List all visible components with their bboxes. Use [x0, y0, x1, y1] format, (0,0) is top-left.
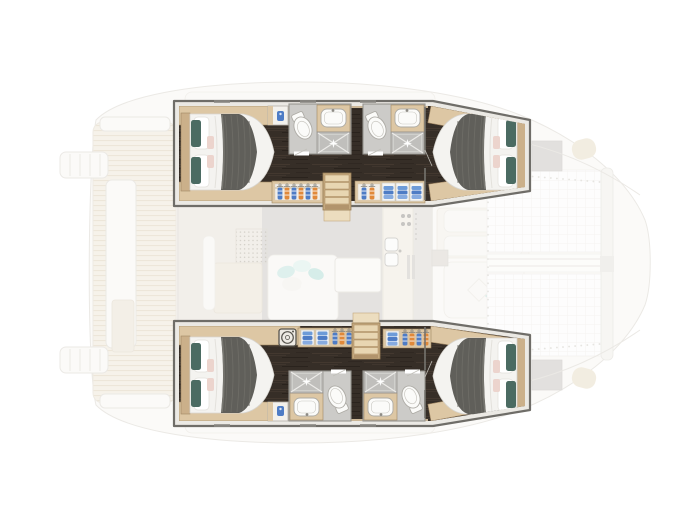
trampoline-spine: [487, 254, 607, 272]
dinette-table: [214, 263, 262, 313]
crossbeam-fitting: [600, 256, 614, 272]
catamaran-floor-plan: [0, 0, 700, 525]
starboard-aft-cabin-bed: [181, 336, 274, 414]
starboard-hull-lower-deck: [174, 313, 530, 427]
cockpit-seat-top: [100, 117, 170, 131]
dinette-bench: [203, 236, 215, 310]
starboard-forward-bathroom: [363, 370, 425, 422]
floor-mat: [236, 229, 267, 263]
port-side-cabinet: [268, 106, 288, 125]
port-wardrobe-right: [355, 181, 425, 203]
port-wardrobe-left: [272, 181, 323, 203]
port-forward-cabin-bed: [433, 113, 526, 191]
trampoline: [487, 170, 607, 356]
cockpit-table: [112, 300, 134, 352]
blue-bottle-icon: [277, 406, 284, 416]
floor-plan-canvas: [0, 0, 700, 525]
starboard-wardrobe-right: [383, 329, 431, 348]
cockpit-seat-bottom: [100, 394, 170, 408]
deck-vent-grid: [432, 250, 448, 266]
galley-sink-basin-2: [385, 253, 398, 266]
deck-hatch-bottom: [532, 360, 562, 390]
starboard-forward-cabin-bed: [433, 337, 526, 415]
blue-bottle-icon: [277, 111, 284, 121]
washing-machine-icon: [279, 329, 296, 346]
starboard-wardrobe-left: [279, 328, 355, 347]
starboard-companionway-stairs: [352, 313, 380, 359]
starboard-side-cabinet: [268, 402, 288, 421]
port-companionway-stairs: [323, 173, 351, 221]
port-aft-cabin-bed: [181, 113, 274, 191]
galley-sink-basin-1: [385, 238, 398, 251]
starboard-aft-bathroom: [289, 370, 351, 422]
port-aft-bathroom: [289, 104, 351, 156]
port-forward-bathroom: [363, 104, 425, 156]
galley: [383, 208, 417, 324]
galley-faucet: [399, 250, 402, 253]
